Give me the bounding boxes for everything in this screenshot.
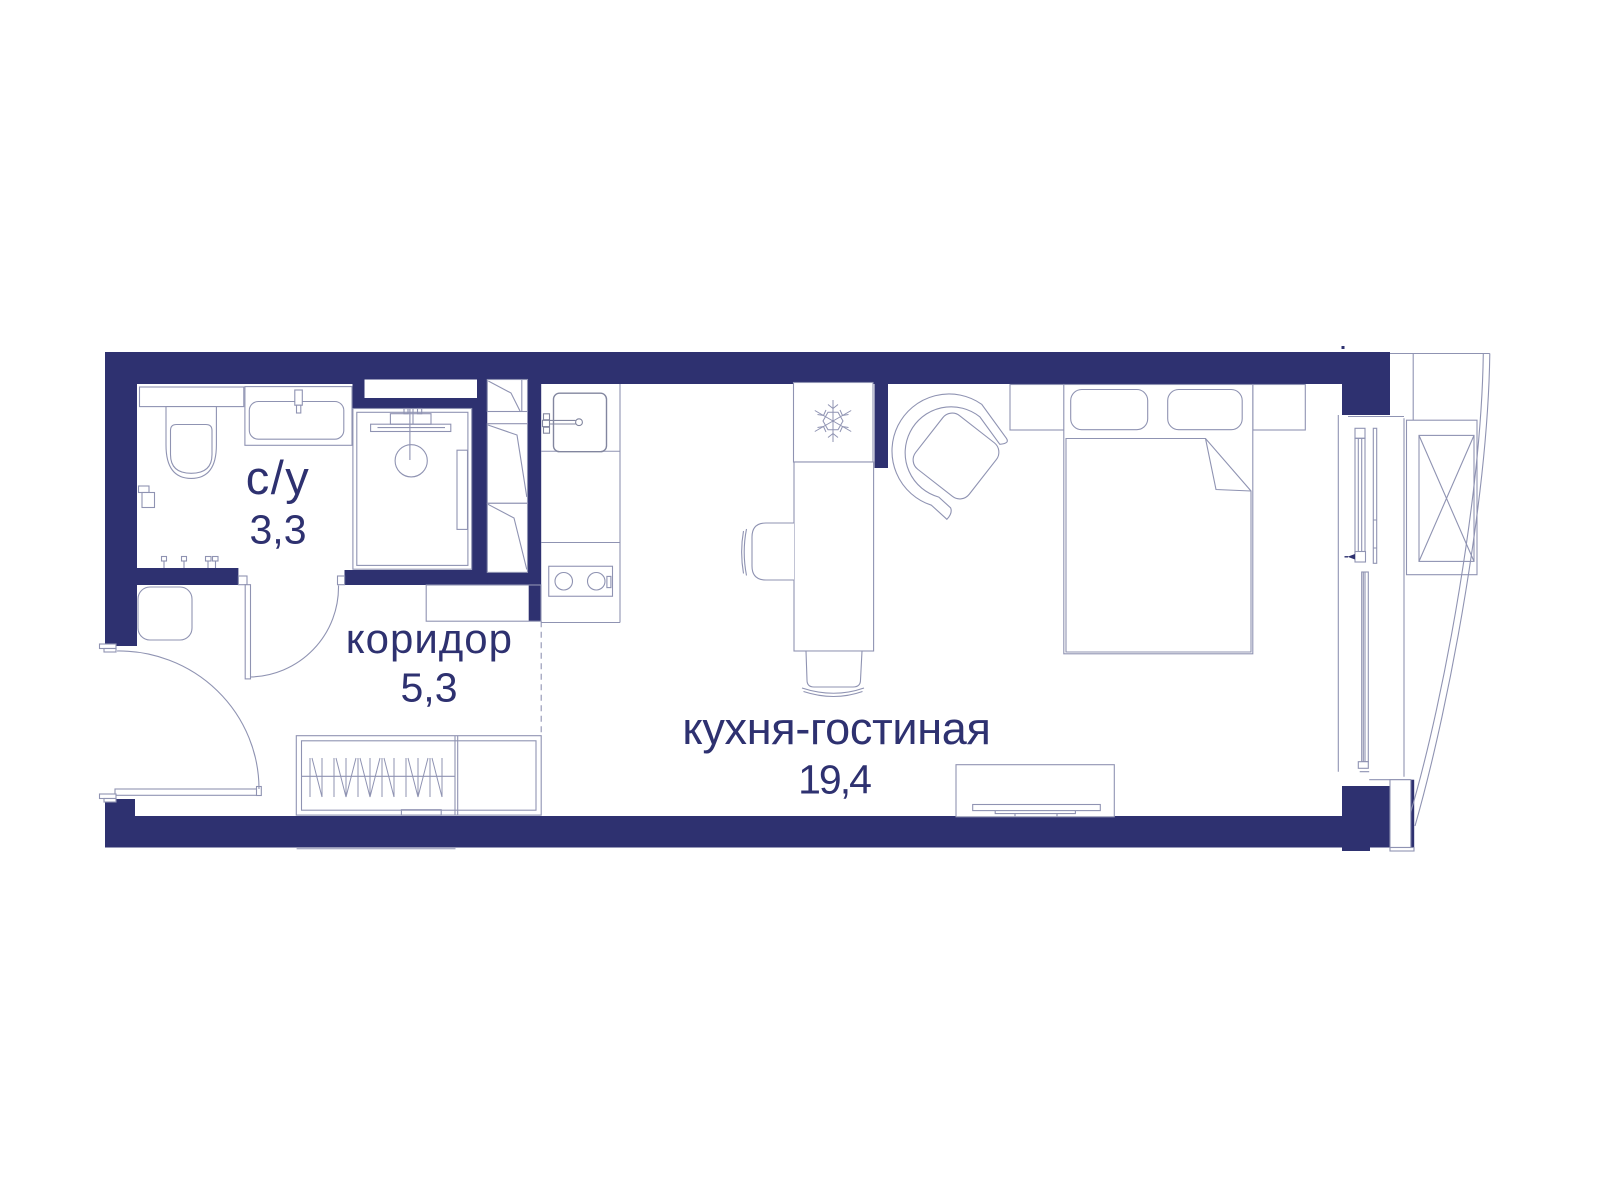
svg-text:кухня-гостиная: кухня-гостиная [682, 703, 990, 754]
svg-text:с/у: с/у [246, 451, 311, 504]
svg-text:5,3: 5,3 [401, 664, 458, 710]
svg-text:3,3: 3,3 [250, 506, 307, 552]
svg-text:коридор: коридор [346, 615, 513, 662]
svg-text:19,4: 19,4 [798, 757, 871, 803]
